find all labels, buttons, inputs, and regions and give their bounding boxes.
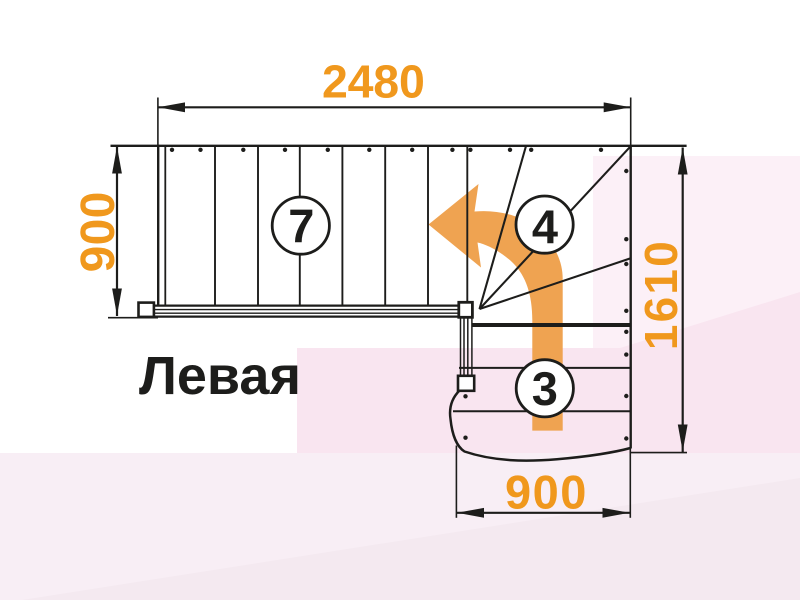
svg-text:3: 3 <box>532 362 558 415</box>
svg-text:900: 900 <box>72 191 125 272</box>
svg-text:7: 7 <box>288 200 314 253</box>
svg-text:2480: 2480 <box>322 56 425 108</box>
svg-text:1610: 1610 <box>635 239 687 350</box>
svg-text:4: 4 <box>532 200 558 253</box>
svg-text:900: 900 <box>505 466 588 519</box>
svg-text:Левая: Левая <box>139 346 301 406</box>
